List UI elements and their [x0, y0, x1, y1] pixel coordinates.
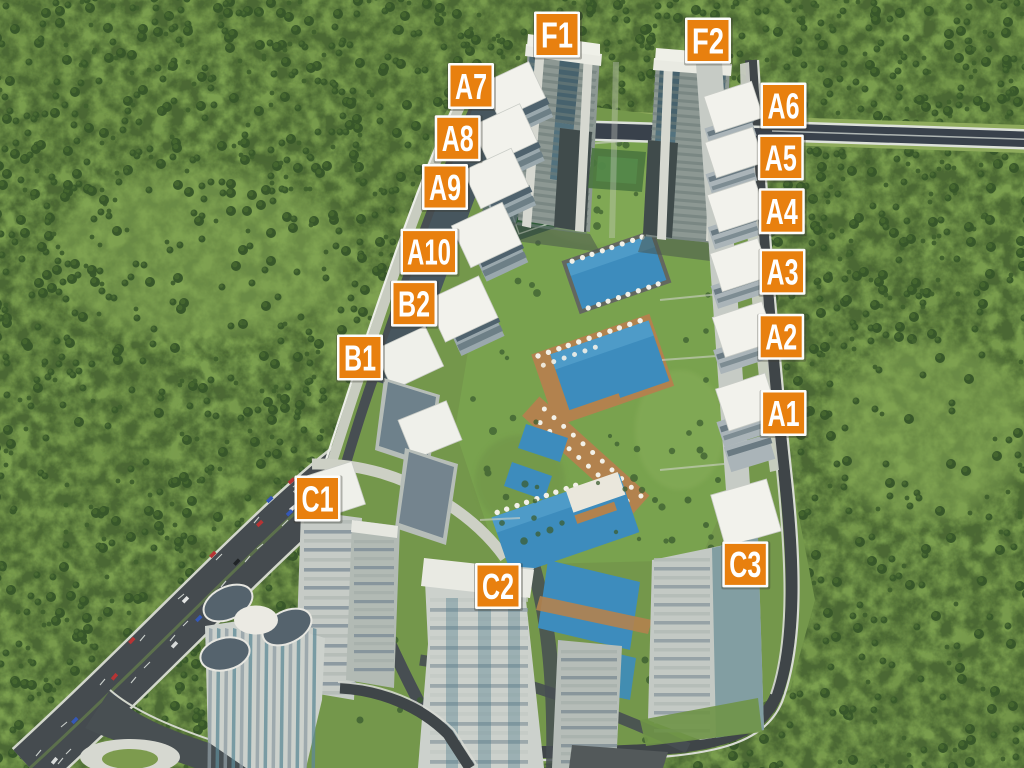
svg-text:A8: A8: [442, 118, 474, 159]
svg-text:F1: F1: [541, 14, 573, 55]
svg-text:A1: A1: [768, 393, 800, 434]
svg-text:F2: F2: [692, 20, 724, 61]
svg-text:A10: A10: [407, 231, 451, 272]
svg-text:C1: C1: [302, 478, 334, 519]
svg-text:A5: A5: [765, 137, 797, 178]
svg-text:A2: A2: [765, 317, 797, 358]
svg-text:A7: A7: [455, 66, 487, 107]
svg-text:A9: A9: [429, 167, 461, 208]
svg-text:C3: C3: [729, 544, 761, 585]
svg-text:C2: C2: [482, 566, 514, 607]
svg-text:A3: A3: [767, 252, 799, 293]
svg-text:B2: B2: [398, 283, 430, 324]
svg-text:A6: A6: [768, 85, 800, 126]
svg-text:A4: A4: [766, 191, 798, 232]
svg-text:B1: B1: [344, 337, 376, 378]
